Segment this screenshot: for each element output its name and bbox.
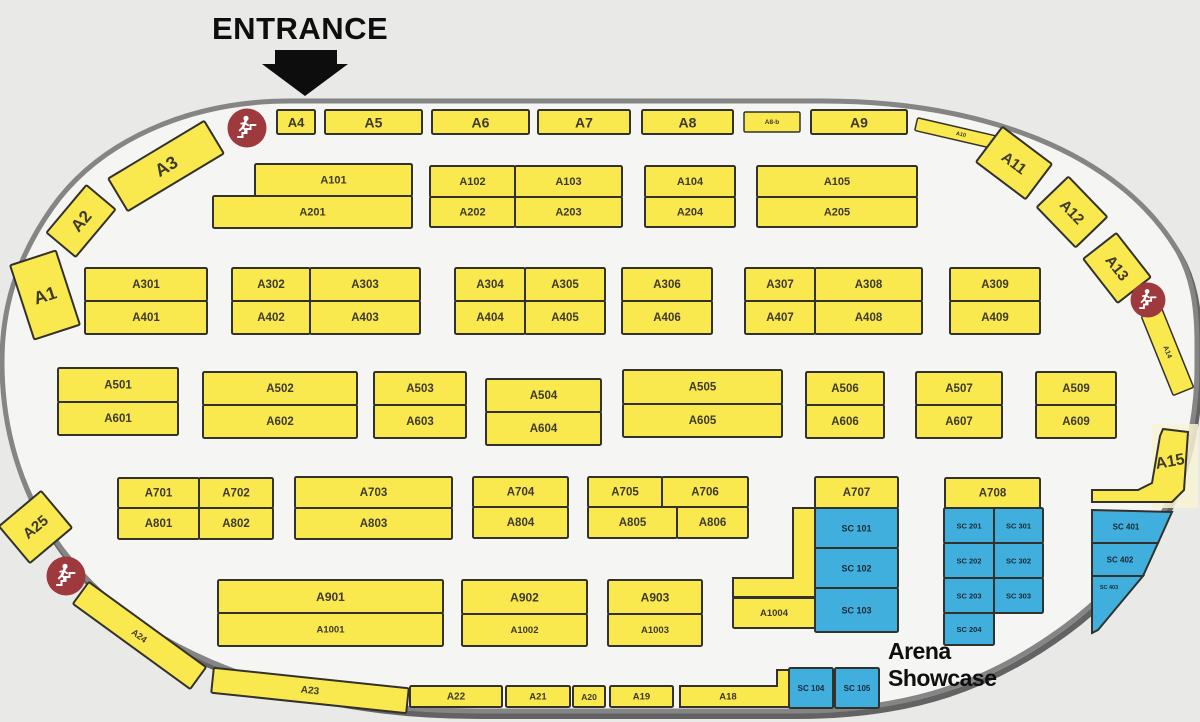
- booth-A1004[interactable]: A1004: [733, 598, 815, 628]
- booth-A406[interactable]: A406: [622, 301, 712, 334]
- stairs-marker-icon: [47, 557, 86, 596]
- booth-A702[interactable]: A702: [199, 478, 273, 508]
- booth-A901[interactable]: A901: [218, 580, 443, 613]
- booth-label: SC 102: [841, 564, 871, 574]
- booth-label: SC 104: [798, 684, 825, 693]
- booth-label: SC 103: [841, 606, 871, 616]
- booth-label: A407: [766, 312, 794, 324]
- booth-label: A1002: [511, 625, 539, 636]
- booth-A605[interactable]: A605: [623, 404, 782, 437]
- booth-A802[interactable]: A802: [199, 508, 273, 539]
- booth-label: A609: [1062, 416, 1090, 428]
- booth-SC-402[interactable]: SC 402: [1092, 543, 1158, 576]
- booth-A305[interactable]: A305: [525, 268, 605, 301]
- booth-label: A409: [981, 312, 1009, 324]
- booth-label: A806: [699, 517, 727, 529]
- booth-label: A402: [257, 312, 285, 324]
- booth-SC-403[interactable]: SC 403: [1092, 576, 1143, 633]
- booth-label: A801: [145, 518, 173, 530]
- booth-A22[interactable]: A22: [410, 686, 502, 707]
- booth-label: A903: [641, 591, 670, 605]
- booth-label: A702: [222, 488, 250, 500]
- booth-label: SC 401: [1113, 523, 1140, 532]
- booth-label: A804: [507, 517, 535, 529]
- booth-label: A1003: [641, 625, 669, 636]
- booth-label: A201: [299, 207, 325, 219]
- booth-label: A707: [843, 487, 871, 499]
- booth-A9[interactable]: A9: [811, 110, 907, 134]
- booth-label: A701: [145, 488, 173, 500]
- stairs-marker-icon: [1131, 283, 1166, 318]
- booth-A804[interactable]: A804: [473, 507, 568, 538]
- booth-A203[interactable]: A203: [515, 197, 622, 227]
- booth-SC-303[interactable]: SC 303: [994, 578, 1043, 613]
- booth-A504[interactable]: A504: [486, 379, 601, 412]
- booth-label: A509: [1062, 383, 1090, 395]
- booth-SC-104[interactable]: SC 104: [789, 668, 833, 708]
- booth-A506[interactable]: A506: [806, 372, 884, 405]
- booth-label: A604: [530, 423, 558, 435]
- booth-A903[interactable]: A903: [608, 580, 702, 614]
- booth-label: A405: [551, 312, 579, 324]
- booth-A507[interactable]: A507: [916, 372, 1002, 405]
- booth-A8-b[interactable]: A8-b: [744, 112, 800, 132]
- booth-label: SC 301: [1006, 522, 1031, 531]
- booth-label: A401: [132, 312, 160, 324]
- booth-label: SC 402: [1107, 556, 1134, 565]
- booth-label: SC 403: [1100, 585, 1118, 591]
- booth-label: SC 203: [956, 592, 981, 601]
- booth-SC-103[interactable]: SC 103: [815, 588, 898, 632]
- booth-label: A306: [653, 279, 681, 291]
- booth-label: A404: [476, 312, 504, 324]
- booth-label: A803: [360, 518, 388, 530]
- booth-A803[interactable]: A803: [295, 508, 452, 539]
- booth-A502[interactable]: A502: [203, 372, 357, 405]
- booth-label: SC 302: [1006, 557, 1031, 566]
- entrance-arrow-icon: [262, 64, 348, 96]
- booth-label: A202: [459, 207, 485, 219]
- booth-A405[interactable]: A405: [525, 301, 605, 334]
- booth-A403[interactable]: A403: [310, 301, 420, 334]
- booth-A1003[interactable]: A1003: [608, 614, 702, 646]
- booth-label: A602: [266, 416, 294, 428]
- booth-A805[interactable]: A805: [588, 507, 677, 538]
- booth-A7[interactable]: A7: [538, 110, 630, 134]
- booth-A306[interactable]: A306: [622, 268, 712, 301]
- booth-A505[interactable]: A505: [623, 370, 782, 404]
- booth-SC-203[interactable]: SC 203: [944, 578, 994, 613]
- booth-label: A1001: [317, 625, 346, 636]
- entrance-label: ENTRANCE: [212, 11, 388, 47]
- booth-A609[interactable]: A609: [1036, 405, 1116, 438]
- booth-A501[interactable]: A501: [58, 368, 178, 402]
- booth-A706[interactable]: A706: [662, 477, 748, 507]
- booth-label: A505: [689, 382, 717, 394]
- booth-A308[interactable]: A308: [815, 268, 922, 301]
- booth-label: A105: [824, 176, 850, 188]
- booth-A407[interactable]: A407: [745, 301, 815, 334]
- booth-label: SC 201: [956, 522, 981, 531]
- booth-A21[interactable]: A21: [506, 686, 570, 707]
- booth-A103[interactable]: A103: [515, 166, 622, 197]
- booth-A1002[interactable]: A1002: [462, 614, 587, 646]
- booth-A105[interactable]: A105: [757, 166, 917, 197]
- booth-label: A18: [719, 692, 736, 703]
- booth-label: A901: [316, 590, 345, 604]
- booth-label: A23: [300, 685, 320, 698]
- arena-showcase-label: Arena Showcase: [888, 638, 1058, 692]
- booth-label: A1004: [760, 608, 789, 619]
- booth-label: A603: [406, 416, 434, 428]
- booth-label: SC 101: [841, 524, 871, 534]
- booth-label: SC 202: [956, 557, 981, 566]
- booth-A704[interactable]: A704: [473, 477, 568, 507]
- booth-A607[interactable]: A607: [916, 405, 1002, 438]
- booth-label: A102: [459, 176, 485, 188]
- booth-SC-302[interactable]: SC 302: [994, 543, 1043, 578]
- booth-label: A303: [351, 279, 379, 291]
- booth-A301[interactable]: A301: [85, 268, 207, 301]
- booth-SC-201[interactable]: SC 201: [944, 508, 994, 543]
- booth-A409[interactable]: A409: [950, 301, 1040, 334]
- booth-label: A204: [677, 207, 704, 219]
- booth-label: A304: [476, 279, 504, 291]
- booth-A603[interactable]: A603: [374, 405, 466, 438]
- booth-A19[interactable]: A19: [610, 686, 673, 707]
- booth-label: A6: [472, 115, 490, 131]
- booth-A302[interactable]: A302: [232, 268, 310, 301]
- booth-A104[interactable]: A104: [645, 166, 735, 197]
- booth-A309[interactable]: A309: [950, 268, 1040, 301]
- booth-A401[interactable]: A401: [85, 301, 207, 334]
- booth-A701[interactable]: A701: [118, 478, 199, 508]
- booth-label: A601: [104, 413, 132, 425]
- booth-SC-105[interactable]: SC 105: [835, 668, 879, 708]
- booth-label: A9: [850, 115, 868, 131]
- booth-label: A607: [945, 416, 973, 428]
- booth-label: A104: [677, 176, 704, 188]
- booth-label: A21: [529, 692, 547, 703]
- booth-A204[interactable]: A204: [645, 197, 735, 227]
- booth-A902[interactable]: A902: [462, 580, 587, 614]
- booth-label: A8-b: [765, 119, 779, 126]
- booth-label: A103: [555, 176, 581, 188]
- booth-A509[interactable]: A509: [1036, 372, 1116, 405]
- booth-label: A704: [507, 487, 535, 499]
- booth-label: A708: [979, 488, 1007, 500]
- booth-A303[interactable]: A303: [310, 268, 420, 301]
- booth-label: A22: [447, 692, 466, 703]
- booth-A8[interactable]: A8: [642, 110, 733, 134]
- booth-A705[interactable]: A705: [588, 477, 662, 507]
- booth-A404[interactable]: A404: [455, 301, 525, 334]
- booth-label: A605: [689, 415, 717, 427]
- booth-label: SC 204: [956, 625, 982, 634]
- booth-label: A308: [855, 279, 883, 291]
- booth-label: A705: [611, 487, 639, 499]
- booth-label: A4: [288, 115, 305, 130]
- booth-label: A501: [104, 380, 132, 392]
- booth-A101[interactable]: A101: [255, 164, 412, 196]
- booth-A408[interactable]: A408: [815, 301, 922, 334]
- booth-label: A20: [581, 692, 597, 702]
- booth-A5[interactable]: A5: [325, 110, 422, 134]
- booth-label: A205: [824, 207, 850, 219]
- booth-label: A507: [945, 383, 973, 395]
- booth-label: A403: [351, 312, 379, 324]
- booth-A202[interactable]: A202: [430, 197, 515, 227]
- booth-label: A406: [653, 312, 681, 324]
- booth-A201[interactable]: A201: [213, 196, 412, 228]
- booth-SC-401[interactable]: SC 401: [1092, 510, 1172, 543]
- booth-label: A309: [981, 279, 1009, 291]
- booth-label: A504: [530, 390, 558, 402]
- booth-A304[interactable]: A304: [455, 268, 525, 301]
- booth-A205[interactable]: A205: [757, 197, 917, 227]
- booth-label: A606: [831, 416, 859, 428]
- booth-label: A8: [679, 115, 697, 131]
- booth-label: A805: [619, 517, 647, 529]
- booth-label: A703: [360, 487, 388, 499]
- booth-A708[interactable]: A708: [945, 478, 1040, 508]
- booth-label: A902: [510, 591, 539, 605]
- booth-A1001[interactable]: A1001: [218, 613, 443, 646]
- booth-SC-102[interactable]: SC 102: [815, 548, 898, 588]
- booth-A6[interactable]: A6: [432, 110, 529, 134]
- booth-SC-101[interactable]: SC 101: [815, 508, 898, 548]
- booth-label: SC 303: [1006, 592, 1031, 601]
- floor-plan-svg: A4A5A6A7A8A8-bA9A3A2A1A10A11A12A13A14A25…: [0, 0, 1200, 722]
- booth-SC-202[interactable]: SC 202: [944, 543, 994, 578]
- booth-A602[interactable]: A602: [203, 405, 357, 438]
- booth-A703[interactable]: A703: [295, 477, 452, 508]
- booth-label: A19: [633, 692, 650, 703]
- booth-label: A506: [831, 383, 859, 395]
- booth-label: A203: [555, 207, 581, 219]
- booth-label: A305: [551, 279, 579, 291]
- booth-label: A503: [406, 383, 434, 395]
- entrance-arrow-icon: [275, 50, 337, 64]
- booth-label: A7: [575, 115, 593, 131]
- booth-A801[interactable]: A801: [118, 508, 199, 539]
- booth-label: A502: [266, 383, 294, 395]
- booth-label: A706: [691, 487, 719, 499]
- booth-SC-301[interactable]: SC 301: [994, 508, 1043, 543]
- booth-A307[interactable]: A307: [745, 268, 815, 301]
- booth-A806[interactable]: A806: [677, 507, 748, 538]
- booth-A601[interactable]: A601: [58, 402, 178, 435]
- booth-label: A101: [320, 175, 346, 187]
- booth-label: A802: [222, 518, 250, 530]
- booth-label: A408: [855, 312, 883, 324]
- booth-A503[interactable]: A503: [374, 372, 466, 405]
- booth-label: SC 105: [844, 684, 871, 693]
- booth-A20[interactable]: A20: [573, 686, 605, 707]
- booth-A707[interactable]: A707: [815, 477, 898, 508]
- booth-label: A302: [257, 279, 285, 291]
- booth-A604[interactable]: A604: [486, 412, 601, 445]
- floor-plan-stage: A4A5A6A7A8A8-bA9A3A2A1A10A11A12A13A14A25…: [0, 0, 1200, 722]
- booth-A606[interactable]: A606: [806, 405, 884, 438]
- booth-label: A307: [766, 279, 794, 291]
- booth-A4[interactable]: A4: [277, 110, 315, 134]
- booth-A402[interactable]: A402: [232, 301, 310, 334]
- stairs-marker-icon: [228, 109, 267, 148]
- booth-label: A5: [365, 115, 383, 131]
- booth-A102[interactable]: A102: [430, 166, 515, 197]
- booth-label: A301: [132, 279, 160, 291]
